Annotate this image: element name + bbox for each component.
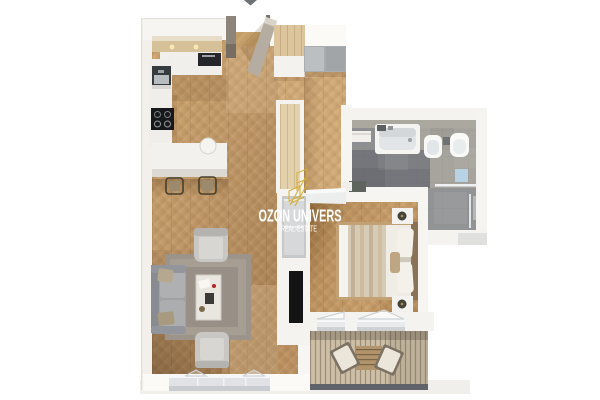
svg-text:OZON UNIVERS: OZON UNIVERS	[259, 206, 342, 226]
svg-text:REAL-ESTATE: REAL-ESTATE	[281, 224, 317, 234]
